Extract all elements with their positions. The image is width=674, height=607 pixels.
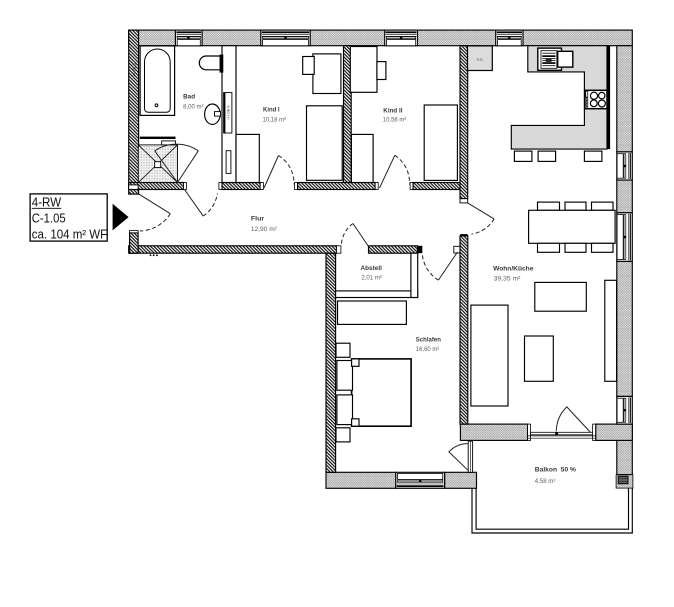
svg-text:H x OB m: H x OB m	[227, 105, 231, 119]
svg-text:16,60 m²: 16,60 m²	[416, 346, 440, 353]
svg-text:Schlafen: Schlafen	[416, 337, 441, 344]
svg-text:Kind I: Kind I	[263, 106, 280, 113]
svg-text:Abstell: Abstell	[361, 265, 383, 272]
svg-text:12,90 m²: 12,90 m²	[251, 226, 277, 233]
svg-text:Bad: Bad	[183, 94, 195, 101]
svg-text:10,18 m²: 10,18 m²	[263, 116, 287, 123]
svg-text:Wohn/Küche: Wohn/Küche	[493, 265, 534, 272]
svg-text:Flur: Flur	[251, 216, 265, 223]
svg-text:Kind II: Kind II	[383, 108, 402, 115]
svg-text:4,58 m²: 4,58 m²	[535, 478, 556, 485]
svg-text:39,35 m²: 39,35 m²	[494, 276, 521, 283]
svg-text:Balkon 50 %: Balkon 50 %	[535, 467, 577, 474]
svg-text:4-RW: 4-RW	[32, 195, 62, 210]
svg-text:C-1.05: C-1.05	[32, 211, 66, 226]
svg-text:KS: KS	[477, 57, 483, 62]
svg-text:8,00 m²: 8,00 m²	[183, 104, 204, 111]
svg-text:10,56 m²: 10,56 m²	[383, 116, 407, 123]
svg-text:24 36,5: 24 36,5	[132, 62, 137, 77]
svg-text:2,01 m²: 2,01 m²	[361, 274, 382, 281]
svg-text:ca. 104 m² WF: ca. 104 m² WF	[32, 227, 108, 242]
